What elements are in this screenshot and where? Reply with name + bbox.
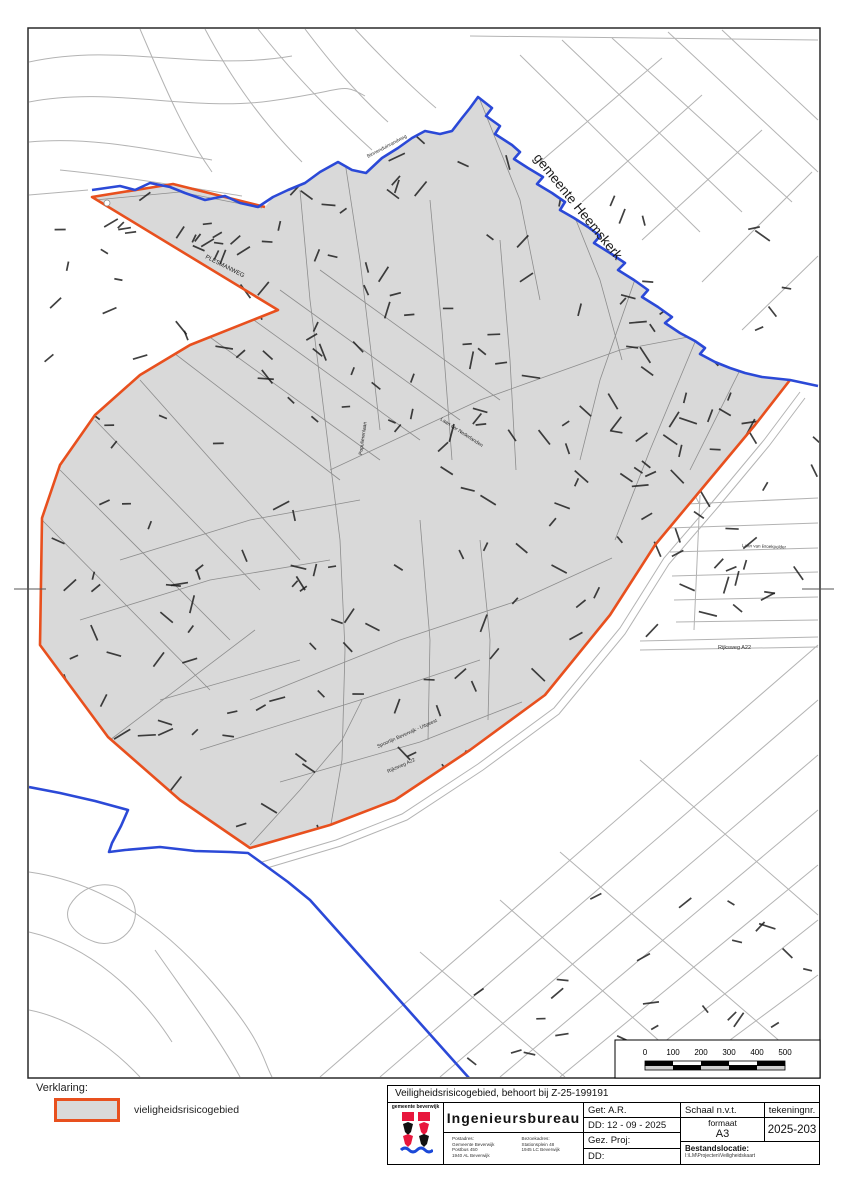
scale-bar-tick-label: 200 (694, 1048, 708, 1057)
title-block: Veiligheidsrisicogebied, behoort bij Z-2… (387, 1085, 820, 1165)
checked-by: Gez. Proj: (583, 1132, 681, 1149)
file-location-field: Bestandslocatie: I:\LM\Projecten\Veiligh… (680, 1141, 820, 1165)
drawn-date: DD: 12 - 09 - 2025 (583, 1117, 681, 1133)
scale-bar-tick-label: 300 (722, 1048, 736, 1057)
legend-swatch-risk-area (54, 1098, 120, 1122)
scale-bar-tick-label: 100 (666, 1048, 680, 1057)
coat-of-arms-icon (399, 1110, 433, 1156)
municipality-logo: gemeente beverwijk (387, 1102, 444, 1165)
scale-bar-tick-label: 0 (643, 1048, 648, 1057)
scale-field: Schaal n.v.t. (680, 1102, 765, 1118)
street-label: Rijksweg A22 (718, 645, 751, 651)
scale-bar-tick-label: 400 (750, 1048, 764, 1057)
drawing-number-value: 2025-203 (764, 1117, 820, 1142)
postadres: Postadres: Gemeente Beverwijk Postbus 45… (444, 1133, 514, 1164)
map-canvas: gemeente HeemskerkPLESMANWEGBinnenduinra… (0, 0, 842, 1191)
map-sheet: gemeente HeemskerkPLESMANWEGBinnenduinra… (0, 0, 842, 1191)
bezoekadres: Bezoekadres: Stationsplein 48 1945 LC Be… (514, 1133, 584, 1164)
format-field: formaat A3 (680, 1117, 765, 1142)
scale-bar: 0100200300400500 (615, 1040, 820, 1078)
roundabout (104, 200, 110, 206)
drawn-by: Get: A.R. (583, 1102, 681, 1118)
legend-item-label: vieligheidsrisicogebied (134, 1104, 239, 1116)
legend-heading: Verklaring: (36, 1082, 239, 1094)
checked-date: DD: (583, 1148, 681, 1165)
scale-bar-tick-label: 500 (778, 1048, 792, 1057)
address-block: Postadres: Gemeente Beverwijk Postbus 45… (443, 1132, 584, 1165)
sheet-title: Veiligheidsrisicogebied, behoort bij Z-2… (387, 1085, 820, 1103)
bureau-title: Ingenieursbureau (443, 1102, 584, 1133)
drawing-number-label: tekeningnr. (764, 1102, 820, 1118)
legend: Verklaring: vieligheidsrisicogebied (36, 1082, 239, 1122)
